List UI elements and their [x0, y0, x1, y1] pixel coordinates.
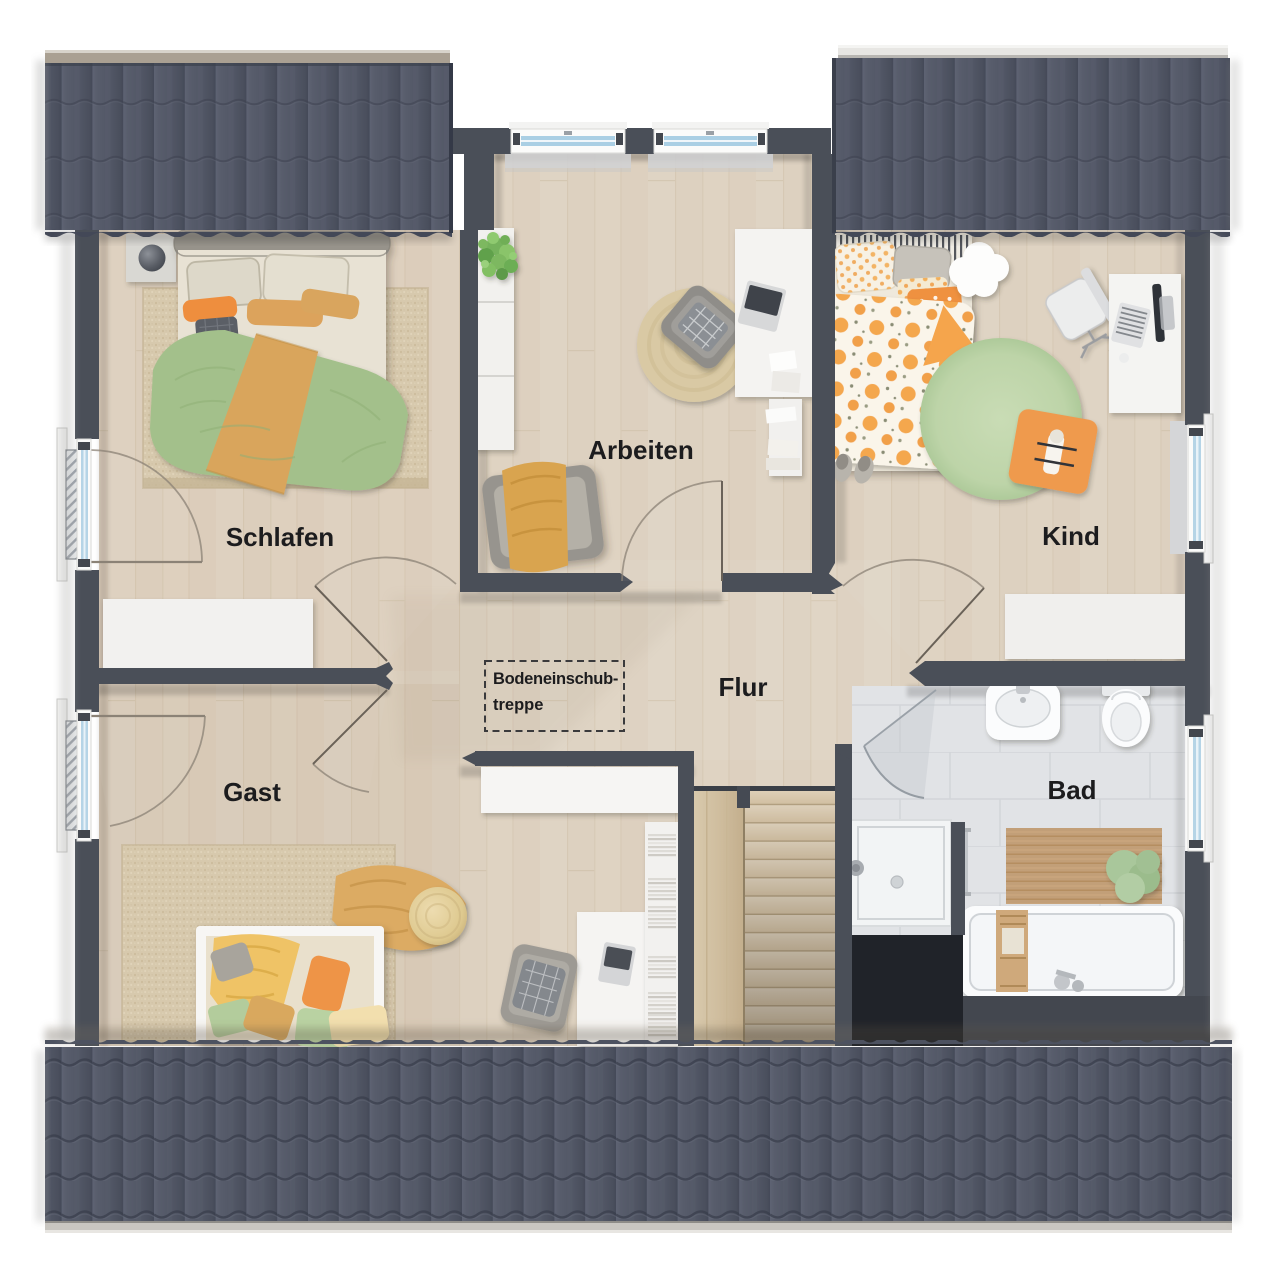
svg-text:Schlafen: Schlafen [226, 522, 334, 552]
svg-text:Flur: Flur [718, 672, 767, 702]
svg-text:treppe: treppe [493, 696, 543, 714]
svg-text:Gast: Gast [223, 777, 281, 807]
svg-text:Kind: Kind [1042, 521, 1100, 551]
svg-text:Bad: Bad [1047, 775, 1096, 805]
svg-text:Bodeneinschub-: Bodeneinschub- [493, 670, 618, 688]
svg-text:Arbeiten: Arbeiten [588, 435, 693, 465]
